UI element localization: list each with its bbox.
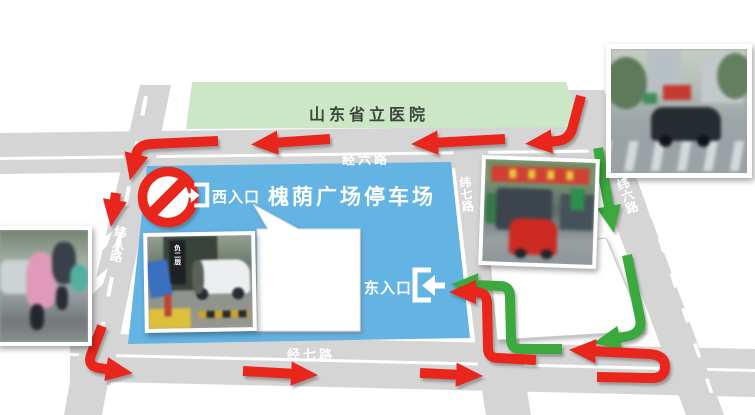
photo-market-street	[478, 155, 600, 269]
photo-crossing-content	[611, 49, 747, 173]
road-label-jing7: 经七路	[287, 344, 335, 364]
scooter-wheel	[56, 286, 68, 310]
photo-west-riders	[0, 226, 92, 346]
red-arrow-jing7-east-2	[420, 373, 462, 375]
road-label-jing6: 经六路	[342, 149, 390, 169]
photo-garage-entrance: 负二层	[143, 231, 257, 333]
photo-west-content	[0, 230, 88, 342]
road-wei7-south-stub	[479, 372, 531, 415]
green-shop-sign	[570, 188, 585, 210]
west-entrance-icon	[182, 182, 210, 208]
red-post	[164, 295, 171, 317]
green-sign-left	[486, 193, 497, 223]
speed-bump	[199, 310, 249, 318]
car-wheel	[697, 135, 710, 147]
traffic-map: 负二层 山东省立医院 槐荫广场停车场 西入口 东入口 经六路 经七路 纬八路 纬…	[0, 0, 755, 415]
photo-rainy-crossing	[606, 44, 752, 178]
teal-poncho-rider	[70, 264, 88, 292]
photo-market-content	[482, 159, 595, 265]
red-storefront-sign	[663, 85, 691, 100]
attendant-figure	[192, 260, 205, 294]
car-wheel	[659, 135, 672, 147]
west-entrance-label: 西入口	[212, 186, 260, 207]
east-entrance-label: 东入口	[364, 277, 412, 298]
arrow-head-right	[191, 188, 200, 203]
hospital-label: 山东省立医院	[274, 101, 464, 125]
parking-lot-title: 槐荫广场停车场	[268, 181, 436, 211]
road-label-wei7: 纬七路	[456, 175, 477, 213]
tree-left	[606, 57, 647, 109]
garage-sign-text: 负二层	[173, 244, 181, 265]
arrow-tail	[434, 283, 445, 289]
red-arrow-jing6-west-2	[272, 139, 330, 143]
red-arrow-wei8-south	[114, 193, 116, 206]
arrow-head-left	[422, 275, 435, 296]
arrow-tail	[183, 193, 192, 197]
red-arrow-jing6-west-1	[432, 139, 505, 143]
green-road-sign	[643, 93, 657, 104]
tree-right	[717, 53, 752, 99]
road-wei8-south-stub	[64, 376, 109, 415]
zebra-crossing	[606, 141, 752, 171]
east-entrance-icon	[410, 266, 446, 304]
red-arrow-jing7-east-1	[243, 371, 297, 374]
scooter-wheel	[30, 304, 44, 330]
photo-garage-content	[147, 235, 253, 329]
